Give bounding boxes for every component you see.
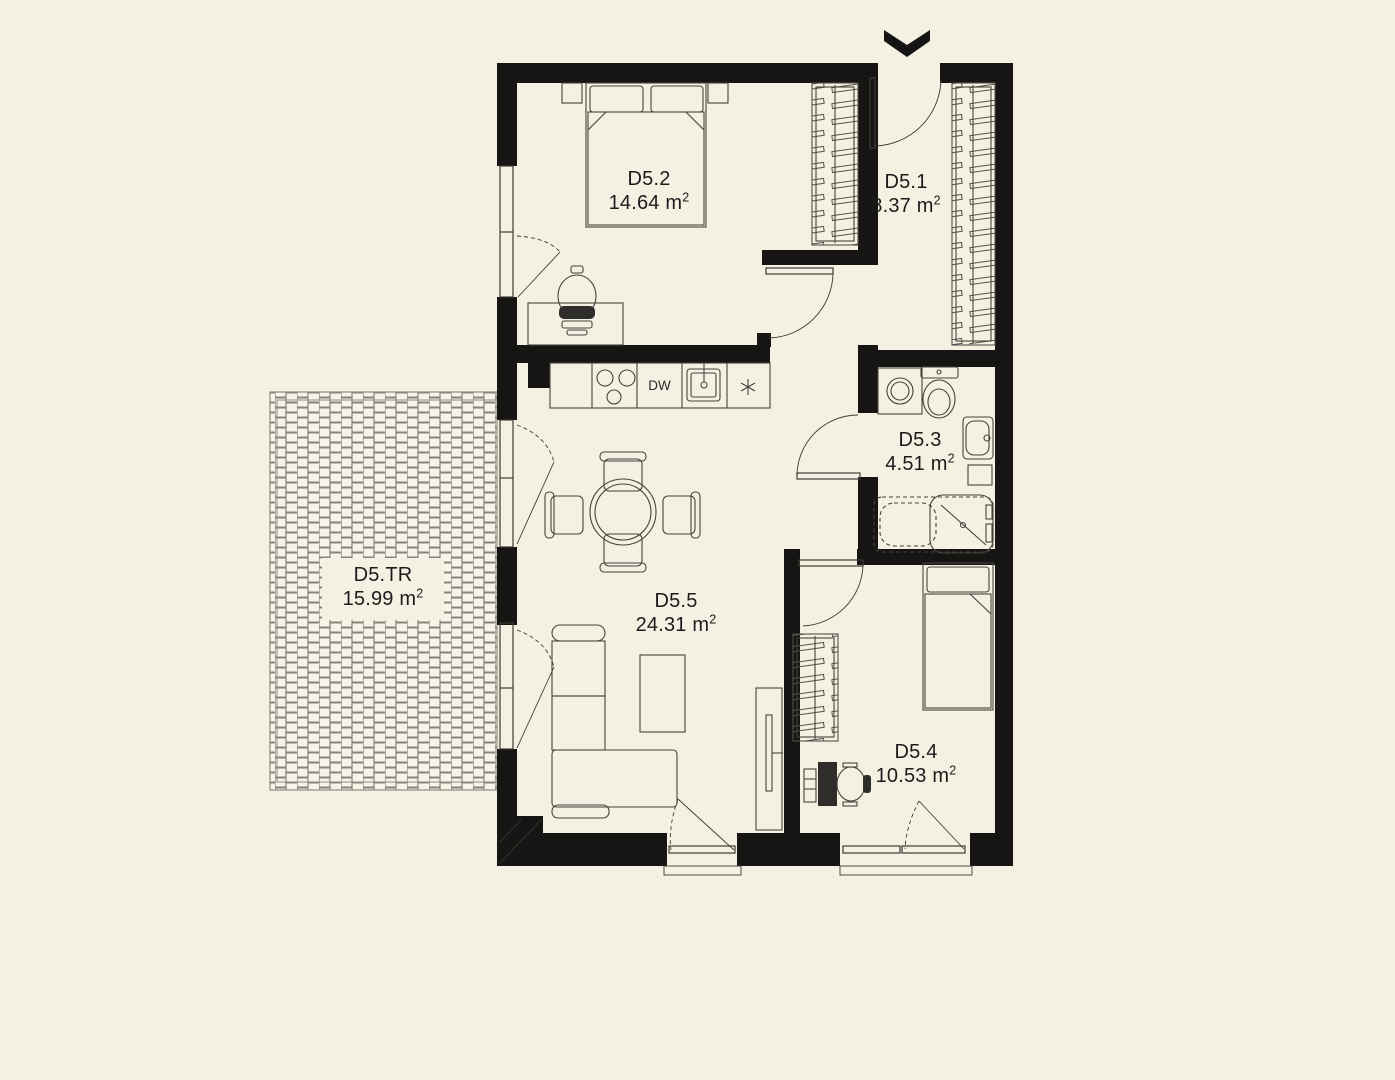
- room-area-value: 8.37 m: [871, 195, 933, 217]
- wall-kitchen-post: [757, 333, 771, 347]
- room-name: D5.3: [855, 429, 985, 452]
- room-area-value: 4.51 m: [885, 453, 947, 475]
- room-area-value: 14.64 m: [609, 192, 683, 214]
- wardrobe-d5-2: [812, 83, 858, 245]
- room-area-value: 15.99 m: [343, 588, 417, 610]
- room-label-d5-5: D5.5 24.31 m2: [611, 590, 741, 637]
- room-label-d5-1: D5.1 8.37 m2: [841, 171, 971, 218]
- wall-bath-west-upper: [858, 345, 878, 413]
- room-name: D5.5: [611, 590, 741, 613]
- room-label-d5-4: D5.4 10.53 m2: [851, 741, 981, 788]
- room-area: 8.37 m2: [841, 195, 971, 218]
- room-area: 14.64 m2: [584, 192, 714, 215]
- wall-right: [995, 63, 1013, 866]
- wall-bottom-3: [970, 833, 1013, 866]
- wall-kitchen-step: [528, 363, 550, 388]
- room-area-exponent: 2: [949, 763, 956, 777]
- wall-left-1: [497, 63, 517, 166]
- room-area-value: 24.31 m: [636, 614, 710, 636]
- wall-left-3: [497, 547, 517, 625]
- dishwasher-label: DW: [637, 368, 682, 404]
- wall-bottom-2: [737, 833, 840, 866]
- room-label-d5-tr: D5.TR 15.99 m2: [318, 564, 448, 611]
- wall-hall-stub: [762, 250, 878, 265]
- room-area-exponent: 2: [416, 586, 423, 600]
- room-area: 10.53 m2: [851, 765, 981, 788]
- entrance-arrow-icon: [884, 30, 930, 57]
- room-area-value: 10.53 m: [876, 765, 950, 787]
- wall-kitchen: [517, 345, 770, 363]
- room-label-d5-2: D5.2 14.64 m2: [584, 168, 714, 215]
- room-label-d5-3: D5.3 4.51 m2: [855, 429, 985, 476]
- room-name: D5.4: [851, 741, 981, 764]
- room-name: D5.TR: [318, 564, 448, 587]
- room-area-exponent: 2: [682, 190, 689, 204]
- room-area: 15.99 m2: [318, 588, 448, 611]
- wall-left-2: [497, 297, 517, 420]
- room-area: 24.31 m2: [611, 614, 741, 637]
- room-area-exponent: 2: [709, 612, 716, 626]
- room-area: 4.51 m2: [855, 453, 985, 476]
- room-name: D5.1: [841, 171, 971, 194]
- door-bathroom: [797, 415, 860, 479]
- floor-plan: D5.2 14.64 m2 D5.1 8.37 m2 D5.3 4.51 m2 …: [0, 0, 1395, 1080]
- room-name: D5.2: [584, 168, 714, 191]
- room-area-exponent: 2: [948, 451, 955, 465]
- wardrobe-d5-4: [793, 634, 838, 741]
- floor-plan-drawing: [0, 0, 1395, 1080]
- room-area-exponent: 2: [934, 193, 941, 207]
- wall-top-left: [497, 63, 866, 83]
- wall-bath-north: [878, 350, 995, 367]
